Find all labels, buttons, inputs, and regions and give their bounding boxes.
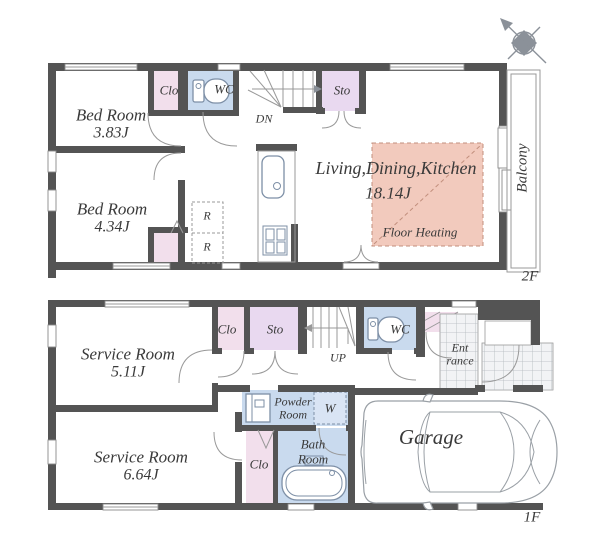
room-size-ldk: 18.14J (365, 183, 411, 202)
room-label-clo-2f-top: Clo (160, 84, 179, 99)
room-label-wc-2f: WC (214, 83, 234, 98)
plan-linework (0, 0, 600, 553)
room-label-clo-1f-side: Clo (250, 458, 269, 473)
room-label-bath: Bath Room (298, 437, 328, 466)
room-label-service2: Service Room 6.64J (94, 448, 188, 485)
stairs-1f (304, 307, 355, 348)
room-label-clo-1f-top: Clo (218, 323, 237, 338)
sink-icon (246, 394, 270, 422)
room-label-powder: Powder Room (274, 396, 311, 423)
floor2-label: 2F (522, 269, 539, 286)
room-label-service1: Service Room 5.11J (81, 345, 175, 382)
floor-plan: Bed Room 3.83J Bed Room 4.34J Clo WC DN … (0, 0, 600, 553)
room-label-sto-1f: Sto (267, 323, 284, 338)
room-label-entrance: Ent rance (446, 342, 473, 369)
washer-label: W (325, 402, 336, 417)
floor-heating-label: Floor Heating (383, 226, 458, 241)
balcony-label: Balcony (515, 143, 532, 192)
fridge-label-top: R (203, 209, 210, 222)
room-label-ldk: Living,Dining,Kitchen (316, 158, 477, 178)
room-label-bedroom2: Bed Room 4.34J (77, 200, 147, 237)
stairs-2f (248, 70, 322, 107)
fridge-label-bottom: R (203, 240, 210, 253)
stairs-up-label: UP (330, 351, 346, 364)
floor1-label: 1F (524, 510, 541, 527)
room-label-garage: Garage (399, 426, 463, 450)
room-label-bedroom1: Bed Room 3.83J (76, 106, 146, 143)
room-label-sto-2f: Sto (334, 84, 351, 99)
compass-icon (500, 18, 546, 63)
kitchen-counter-icon (258, 151, 295, 262)
room-label-wc-1f: WC (390, 323, 410, 338)
car-icon (361, 394, 557, 510)
stairs-down-label: DN (256, 112, 273, 125)
